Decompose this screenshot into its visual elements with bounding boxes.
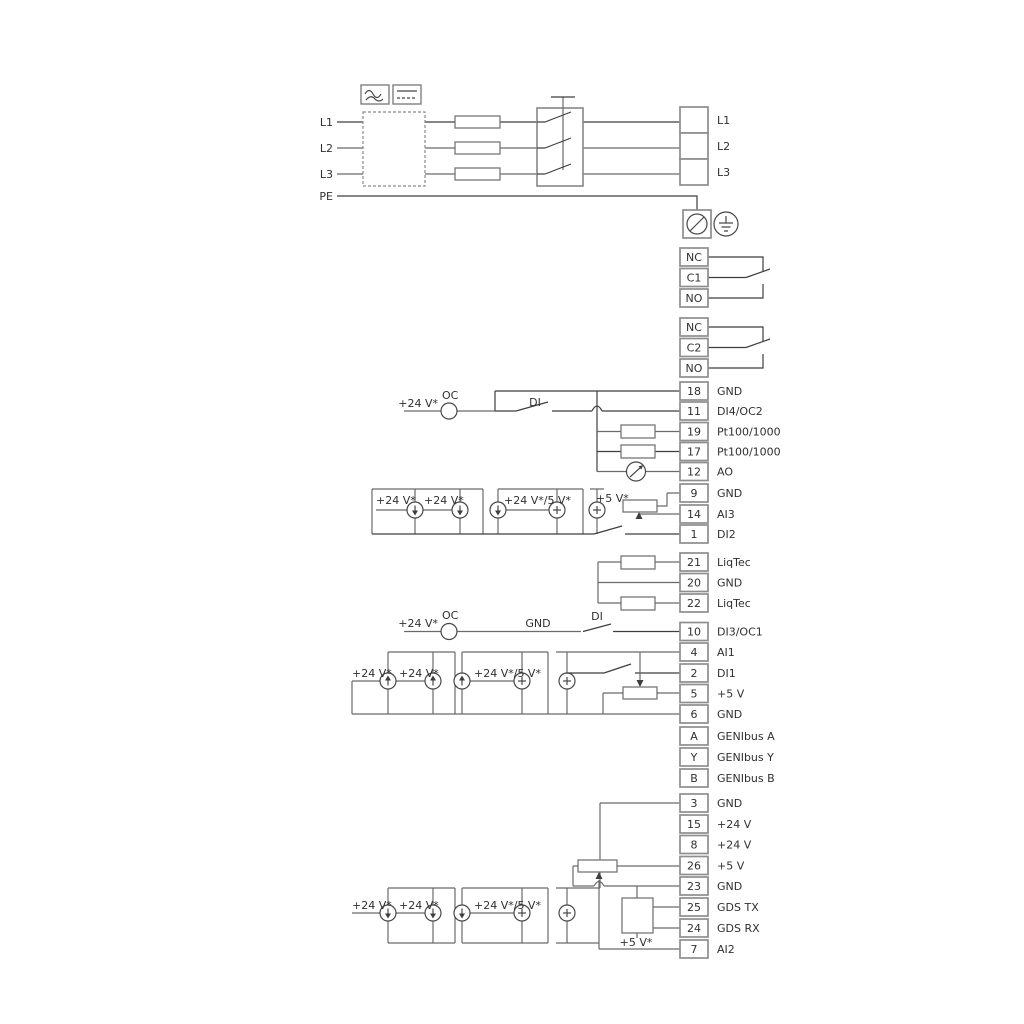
terminal-number-25: 25	[687, 901, 701, 914]
liqtec-sensor-wiring	[598, 556, 680, 610]
terminal-number-A: A	[690, 730, 698, 743]
terminal-number-NO: NO	[686, 362, 703, 375]
mains-pe-label: PE	[319, 190, 333, 203]
terminal-label-B: GENIbus B	[717, 772, 775, 785]
rfi-filter-box	[361, 85, 425, 186]
terminal-label-15: +24 V	[717, 818, 752, 831]
gds-sensor-box	[622, 898, 653, 933]
earth-ground-icon	[714, 212, 738, 236]
mains-input-wiring	[337, 122, 680, 174]
wiring-diagram: L1 L2 L3 PE +24 V* OC DI +24 V* +24 V* +…	[0, 0, 1024, 1024]
terminal-number-19: 19	[687, 426, 701, 439]
terminal-number-1: 1	[691, 528, 698, 541]
terminal-number-B: B	[690, 772, 698, 785]
terminal-label-4: AI1	[717, 646, 735, 659]
terminal-label-2: DI1	[717, 667, 736, 680]
terminal-number-3: 3	[691, 797, 698, 810]
terminal-number-6: 6	[691, 708, 698, 721]
liqtec-resistor-2	[621, 597, 655, 610]
liqtec-resistor-1	[621, 556, 655, 569]
terminal-label-12: AO	[717, 466, 733, 479]
grpD-s2-label: +24 V*	[399, 899, 439, 912]
terminal-number-NC: NC	[686, 321, 702, 334]
grpC-s1-label: +24 V*	[352, 667, 392, 680]
grpB-s1-label: +24 V*	[376, 494, 416, 507]
grpC-24v-label: +24 V*	[398, 617, 438, 630]
grpA-di-label: DI	[529, 396, 541, 409]
mains-l1-label: L1	[320, 116, 333, 129]
terminal-label-L2: L2	[717, 140, 730, 153]
terminal-number-7: 7	[691, 943, 698, 956]
terminal-number-8: 8	[691, 839, 698, 852]
terminal-label-9: GND	[717, 487, 742, 500]
terminal-label-L3: L3	[717, 166, 730, 179]
terminal-number-15: 15	[687, 818, 701, 831]
open-collector-icon	[441, 403, 457, 419]
terminal-number-21: 21	[687, 556, 701, 569]
grpB-5v-label: +5 V*	[596, 492, 629, 505]
terminal-number-12: 12	[687, 466, 701, 479]
terminal-number-NO: NO	[686, 292, 703, 305]
terminal-number-22: 22	[687, 597, 701, 610]
terminal-number-Y: Y	[690, 751, 698, 764]
meter-icon	[627, 462, 646, 481]
pt100-sensor-wiring	[597, 425, 680, 458]
ai2-gds-option-wiring	[352, 803, 680, 949]
terminal-label-18: GND	[717, 385, 742, 398]
main-disconnect-switch	[537, 97, 583, 186]
pt100-resistor-2	[621, 445, 655, 458]
terminal-label-5: +5 V	[717, 688, 745, 701]
terminal-label-20: GND	[717, 577, 742, 590]
terminal-label-24: GDS RX	[717, 922, 760, 935]
grpC-s3-label: +24 V*/5 V*	[474, 667, 541, 680]
terminal-label-A: GENIbus A	[717, 730, 775, 743]
terminal-number-14: 14	[687, 508, 701, 521]
terminal-label-14: AI3	[717, 508, 735, 521]
analog-output-wiring	[597, 462, 680, 481]
terminal-number-NC: NC	[686, 251, 702, 264]
grpD-s3-label: +24 V*/5 V*	[474, 899, 541, 912]
pe-wiring	[337, 196, 738, 238]
terminal-number-26: 26	[687, 860, 701, 873]
grpA-24v-label: +24 V*	[398, 397, 438, 410]
grpB-s3-label: +24 V*/5 V*	[504, 494, 571, 507]
potentiometer-c	[623, 687, 657, 699]
terminal-number-20: 20	[687, 577, 701, 590]
potentiometer-d	[578, 860, 617, 872]
terminal-box-L3	[680, 159, 708, 185]
terminal-label-11: DI4/OC2	[717, 405, 763, 418]
schematic-canvas: L1 L2 L3 PE +24 V* OC DI +24 V* +24 V* +…	[0, 0, 1024, 1024]
grpA-oc-label: OC	[442, 389, 459, 402]
terminal-label-19: Pt100/1000	[717, 426, 781, 439]
terminal-box-L1	[680, 107, 708, 133]
ai1-di1-option-wiring	[352, 652, 680, 714]
grpC-gnd-label: GND	[525, 617, 550, 630]
grpC-s2-label: +24 V*	[399, 667, 439, 680]
pt100-resistor-1	[621, 425, 655, 438]
terminal-label-7: AI2	[717, 943, 735, 956]
terminal-label-Y: GENIbus Y	[717, 751, 774, 764]
terminal-number-9: 9	[691, 487, 698, 500]
terminal-number-5: 5	[691, 688, 698, 701]
terminal-label-22: LiqTec	[717, 597, 751, 610]
terminal-label-25: GDS TX	[717, 901, 759, 914]
terminal-number-11: 11	[687, 405, 701, 418]
grpD-5v-label: +5 V*	[620, 936, 653, 949]
terminal-box-L2	[680, 133, 708, 159]
grpD-s1-label: +24 V*	[352, 899, 392, 912]
terminal-number-4: 4	[691, 646, 698, 659]
terminal-number-17: 17	[687, 446, 701, 459]
grpC-oc-label: OC	[442, 609, 459, 622]
terminal-number-10: 10	[687, 626, 701, 639]
terminal-label-8: +24 V	[717, 839, 752, 852]
mains-l3-label: L3	[320, 168, 333, 181]
terminal-label-1: DI2	[717, 528, 736, 541]
relay1-wiring	[708, 257, 770, 298]
mains-l2-label: L2	[320, 142, 333, 155]
terminal-number-24: 24	[687, 922, 701, 935]
grpB-s2-label: +24 V*	[424, 494, 464, 507]
terminal-label-21: LiqTec	[717, 556, 751, 569]
terminal-label-23: GND	[717, 880, 742, 893]
terminal-number-18: 18	[687, 385, 701, 398]
terminal-label-10: DI3/OC1	[717, 626, 763, 639]
open-collector-icon	[441, 624, 457, 640]
annotation-labels: L1 L2 L3 PE +24 V* OC DI +24 V* +24 V* +…	[319, 116, 652, 949]
grpC-di-label: DI	[591, 610, 603, 623]
relay2-wiring	[708, 327, 770, 368]
terminal-number-C1: C1	[687, 272, 702, 285]
terminal-label-26: +5 V	[717, 860, 745, 873]
terminal-label-17: Pt100/1000	[717, 446, 781, 459]
terminal-number-C2: C2	[687, 342, 702, 355]
terminal-label-6: GND	[717, 708, 742, 721]
terminal-label-L1: L1	[717, 114, 730, 127]
mains-fuses	[455, 116, 500, 180]
terminal-number-2: 2	[691, 667, 698, 680]
terminal-label-3: GND	[717, 797, 742, 810]
terminal-number-23: 23	[687, 880, 701, 893]
